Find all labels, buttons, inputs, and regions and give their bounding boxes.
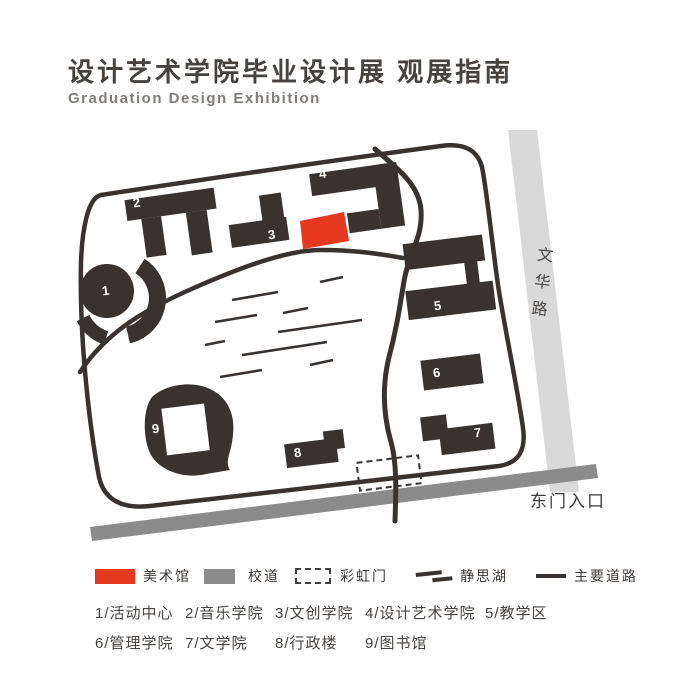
index-item: 3/文创学院 [275, 602, 354, 623]
building-index-row-1: 1/活动中心 2/音乐学院 3/文创学院 4/设计艺术学院 5/教学区 [95, 602, 655, 620]
lake-dashes-icon [415, 567, 454, 585]
main-road-line-icon [536, 574, 566, 578]
legend-item-art-museum: 美术馆 [95, 565, 191, 587]
index-item: 2/音乐学院 [185, 602, 264, 623]
legend-item-rainbow-gate: 彩虹门 [295, 565, 388, 587]
legend-label: 校道 [248, 566, 280, 586]
east-gate-label: 东门入口 [530, 487, 606, 512]
rainbow-gate [357, 455, 422, 490]
index-item: 9/图书馆 [365, 632, 428, 653]
legend-label: 主要道路 [574, 566, 638, 586]
index-item: 5/教学区 [485, 602, 548, 623]
index-item: 6/管理学院 [95, 632, 174, 653]
building-7-literature-school [420, 409, 495, 457]
campus-road-swatch-icon [204, 569, 235, 584]
building-5-teaching-area [400, 234, 497, 320]
building-6-management-school [420, 353, 483, 390]
art-museum-building [300, 212, 349, 249]
index-item: 1/活动中心 [95, 602, 174, 623]
lake-path-line [80, 250, 403, 372]
legend-item-campus-road: 校道 [204, 565, 280, 587]
building-1-activity-center [80, 264, 157, 338]
campus-map [0, 0, 692, 692]
legend-item-main-road: 主要道路 [536, 565, 638, 587]
building-index-row-2: 6/管理学院 7/文学院 8/行政楼 9/图书馆 [95, 632, 655, 650]
legend-label: 静思湖 [460, 566, 508, 586]
rainbow-gate-swatch-icon [295, 568, 331, 584]
index-item: 4/设计艺术学院 [365, 602, 476, 623]
art-museum-swatch-icon [95, 569, 135, 584]
legend-label: 彩虹门 [340, 566, 388, 586]
legend-item-jingsi-lake: 静思湖 [416, 565, 508, 587]
building-3-cultural-school [225, 192, 289, 248]
legend-label: 美术馆 [143, 566, 191, 586]
index-item: 8/行政楼 [275, 632, 338, 653]
jingsi-lake-dashes [205, 277, 362, 377]
index-item: 7/文学院 [185, 632, 248, 653]
